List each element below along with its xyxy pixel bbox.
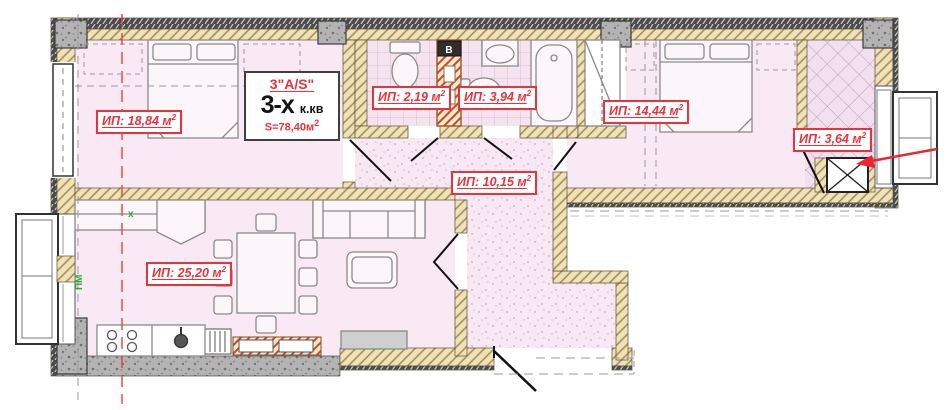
window-mark-pm: ПМ <box>74 274 85 290</box>
area-label-text: ИП: 18,84 м <box>102 114 172 128</box>
coffee-table <box>347 252 397 288</box>
wall-bottom-concrete <box>57 356 340 376</box>
insulation-wing-bottom <box>553 203 893 207</box>
column-top-right <box>863 20 893 48</box>
sofa <box>313 200 425 238</box>
axis-cross-mark: x <box>128 209 134 220</box>
window-pier <box>57 256 75 282</box>
sup-2: 2 <box>862 131 866 140</box>
apartment-total-area: S=78,40м2 <box>248 118 336 135</box>
window-bay-living <box>16 214 75 344</box>
kitchen-counter <box>97 325 205 356</box>
wall-bedroom1-living <box>75 188 455 200</box>
apartment-rooms-count: 3-х к.кв <box>248 93 336 118</box>
wall-living-hall-lower <box>455 290 467 356</box>
area-label-bathroom: ИП: 3,94 м2 <box>458 86 537 110</box>
sup-2: 2 <box>527 174 531 183</box>
wall-bath-bottom-2 <box>440 126 482 138</box>
wall-top <box>57 29 893 40</box>
area-label-living-kitchen: ИП: 25,20 м2 <box>146 262 232 286</box>
wall-bottom-mid <box>340 348 494 366</box>
column-top-mid-left <box>318 21 346 44</box>
area-label-text: ИП: 3,64 м <box>799 132 862 146</box>
door-entrance <box>494 351 536 391</box>
sup-2: 2 <box>314 118 319 128</box>
wall-bedroom2-loggia <box>797 40 807 130</box>
sup-2: 2 <box>222 265 226 274</box>
area-label-wc: ИП: 2,19 м2 <box>372 86 451 110</box>
wall-hall-bedroom2 <box>553 172 567 271</box>
sup-2: 2 <box>441 89 445 98</box>
floor-plan-drawing: В <box>0 0 951 410</box>
area-label-bedroom1: ИП: 18,84 м2 <box>96 110 182 134</box>
vent-mark-label: В <box>445 45 452 56</box>
sup-2: 2 <box>679 103 683 112</box>
floor-plan-page: В <box>0 0 951 410</box>
bathtub <box>531 40 577 126</box>
wall-living-hall-upper <box>455 200 467 233</box>
insulation-bottom-mid <box>340 366 494 370</box>
wall-wc-left <box>355 40 367 126</box>
wall-bath-bottom-3 <box>520 126 578 138</box>
sink-bathroom <box>482 40 518 66</box>
area-label-text: ИП: 3,94 м <box>464 90 527 104</box>
insulation-entrance-right <box>612 366 632 370</box>
shaft-flue-1 <box>444 66 455 82</box>
area-label-text: ИП: 2,19 м <box>378 90 441 104</box>
rooms-count-text: 3-х <box>261 91 294 119</box>
area-label-text: ИП: 25,20 м <box>152 266 222 280</box>
total-area-text: S=78,40м <box>265 121 314 133</box>
sup-2: 2 <box>527 89 531 98</box>
window-bedroom1 <box>49 62 77 178</box>
wall-bedroom1-hall-upper <box>343 40 355 138</box>
tv-stand <box>341 331 407 349</box>
vent-shaft: В <box>437 40 461 126</box>
rooms-unit-text: к.кв <box>300 102 324 116</box>
wall-vestibule-right <box>616 283 628 360</box>
apartment-info-box: 3"A/S" 3-х к.кв S=78,40м2 <box>244 71 340 141</box>
window-right-loggia <box>875 86 937 188</box>
insulation-top <box>57 18 893 29</box>
area-label-loggia: ИП: 3,64 м2 <box>793 128 872 152</box>
wall-vestibule-jog <box>553 271 628 283</box>
toilet-wc <box>390 42 420 88</box>
column-top-left <box>55 20 87 48</box>
wall-under-wardrobe <box>578 126 626 138</box>
wall-bath-bottom-1 <box>355 126 408 138</box>
area-label-text: ИП: 10,15 м <box>457 175 527 189</box>
area-label-bedroom2: ИП: 14,44 м2 <box>603 100 689 124</box>
area-label-text: ИП: 14,44 м <box>609 104 679 118</box>
kitchen-sink <box>175 335 188 348</box>
wall-hall-bedroom2-top <box>553 126 567 138</box>
area-label-hallway: ИП: 10,15 м2 <box>451 171 537 195</box>
bedroom2-floor-lower <box>567 138 626 188</box>
sup-2: 2 <box>172 113 176 122</box>
